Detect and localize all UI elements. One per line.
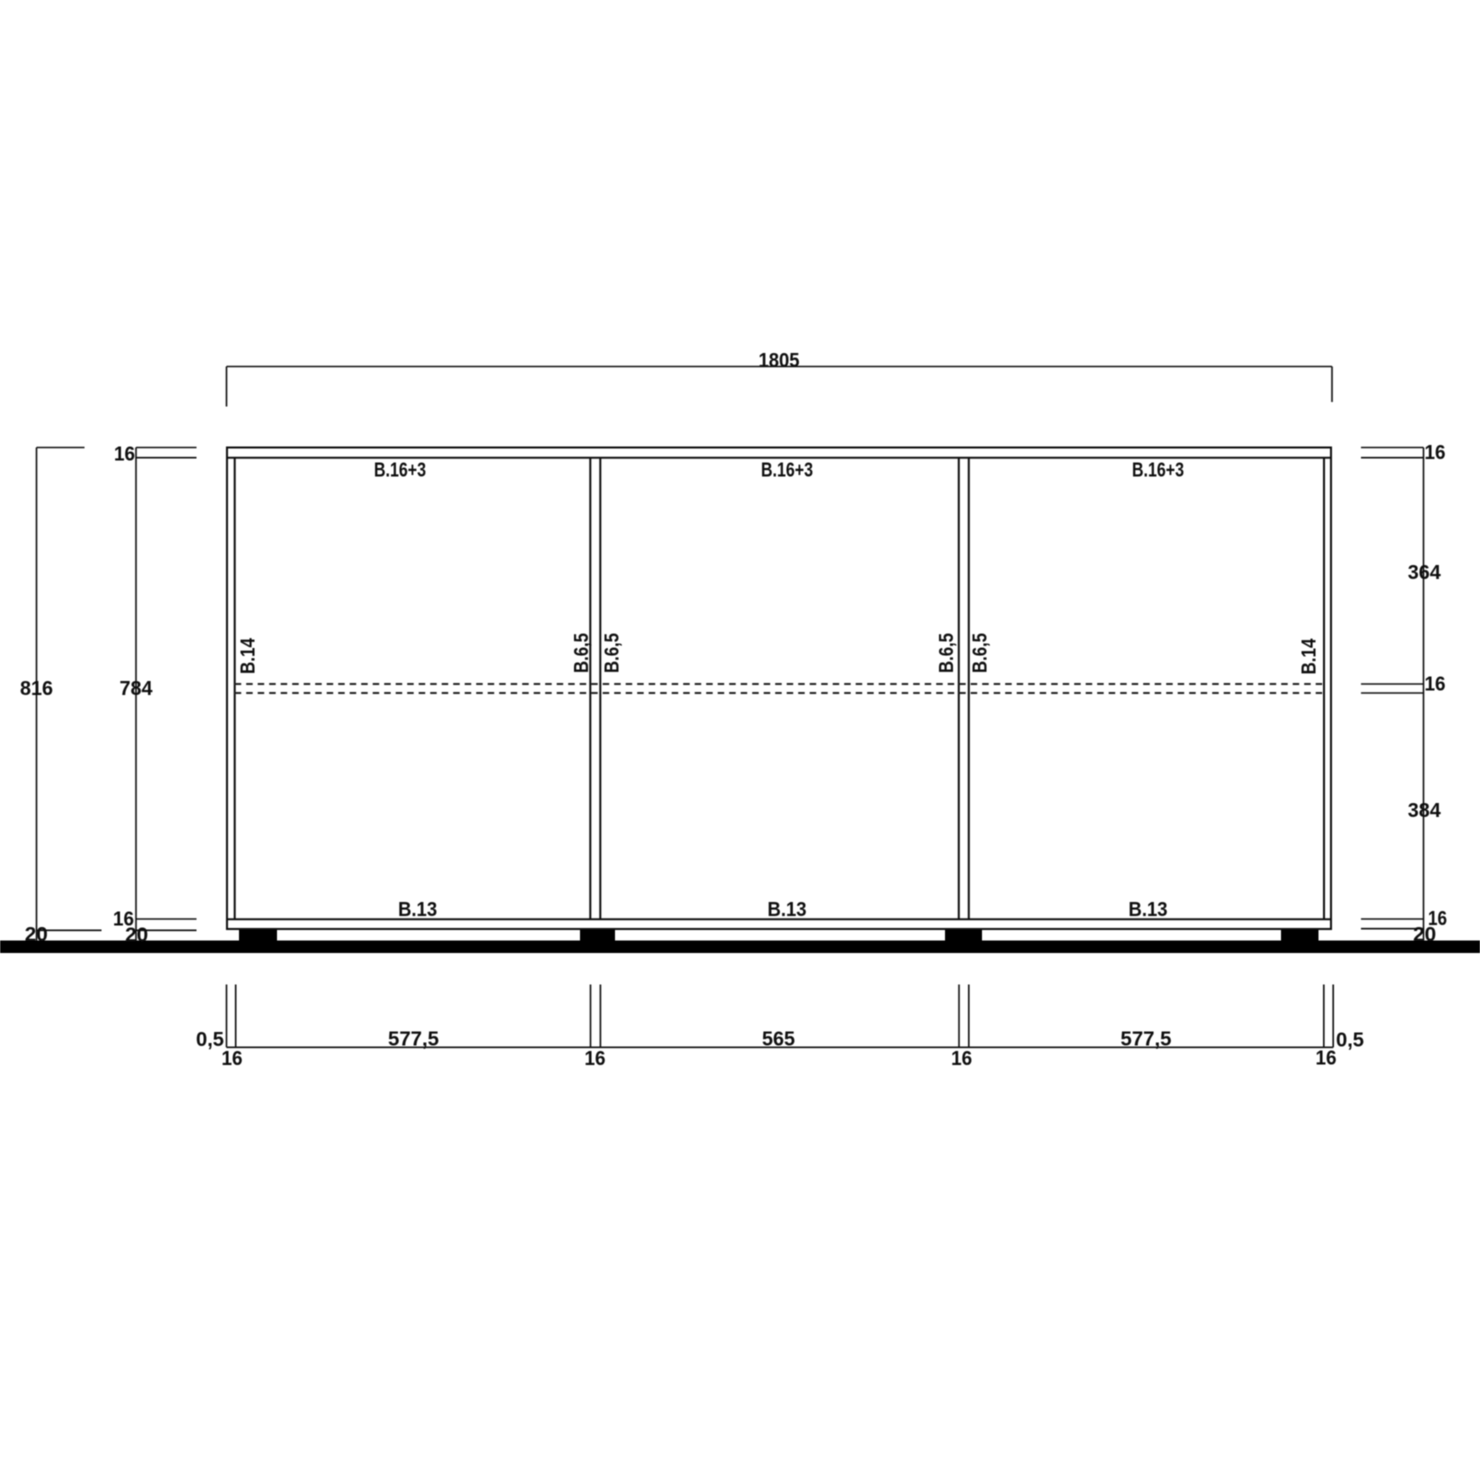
svg-text:816: 816 (20, 678, 53, 700)
svg-text:B.6,5: B.6,5 (936, 633, 958, 673)
svg-text:1805: 1805 (759, 350, 800, 372)
svg-text:16: 16 (1425, 442, 1446, 464)
svg-text:16: 16 (951, 1048, 972, 1070)
svg-text:0,5: 0,5 (196, 1029, 224, 1051)
svg-text:384: 384 (1408, 800, 1442, 822)
svg-text:16: 16 (585, 1048, 606, 1070)
svg-text:16: 16 (1425, 674, 1446, 696)
svg-text:B.6,5: B.6,5 (601, 633, 623, 673)
svg-text:B.6,5: B.6,5 (571, 633, 593, 673)
svg-text:B.14: B.14 (1299, 638, 1321, 675)
svg-text:577,5: 577,5 (388, 1029, 439, 1051)
svg-text:20: 20 (125, 924, 148, 946)
svg-text:20: 20 (25, 924, 48, 946)
svg-text:0,5: 0,5 (1336, 1030, 1364, 1052)
svg-text:B.16+3: B.16+3 (761, 460, 813, 482)
svg-text:B.16+3: B.16+3 (1132, 460, 1184, 482)
svg-text:B.13: B.13 (1129, 899, 1168, 921)
svg-text:16: 16 (1316, 1048, 1337, 1070)
svg-text:577,5: 577,5 (1121, 1029, 1172, 1051)
svg-text:16: 16 (114, 443, 135, 465)
svg-text:784: 784 (120, 678, 154, 700)
svg-text:565: 565 (762, 1029, 795, 1051)
svg-text:364: 364 (1408, 562, 1442, 584)
svg-text:20: 20 (1413, 924, 1436, 946)
svg-text:B.16+3: B.16+3 (374, 460, 426, 482)
svg-text:B.6,5: B.6,5 (969, 633, 991, 673)
svg-text:16: 16 (222, 1048, 243, 1070)
svg-text:B.13: B.13 (768, 899, 807, 921)
svg-text:B.13: B.13 (398, 899, 437, 921)
svg-text:B.14: B.14 (238, 637, 260, 674)
